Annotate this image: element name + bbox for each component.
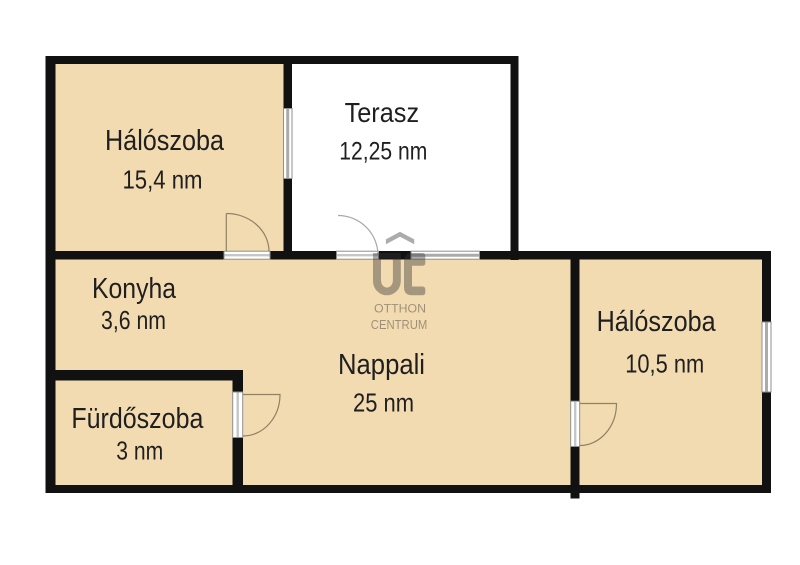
svg-text:Hálószoba: Hálószoba [105,125,225,157]
svg-text:OTTHON: OTTHON [374,302,426,316]
svg-text:10,5 nm: 10,5 nm [625,349,704,379]
svg-text:15,4 nm: 15,4 nm [123,165,203,195]
svg-text:Terasz: Terasz [345,97,420,128]
svg-text:3,6 nm: 3,6 nm [101,305,166,335]
svg-text:Konyha: Konyha [92,273,177,305]
svg-text:CENTRUM: CENTRUM [371,318,428,332]
svg-text:25 nm: 25 nm [353,388,414,418]
svg-text:Nappali: Nappali [338,349,425,381]
svg-text:12,25 nm: 12,25 nm [339,138,427,166]
svg-text:3 nm: 3 nm [116,436,163,466]
svg-text:Hálószoba: Hálószoba [597,306,717,338]
svg-text:Fürdőszoba: Fürdőszoba [71,403,204,435]
